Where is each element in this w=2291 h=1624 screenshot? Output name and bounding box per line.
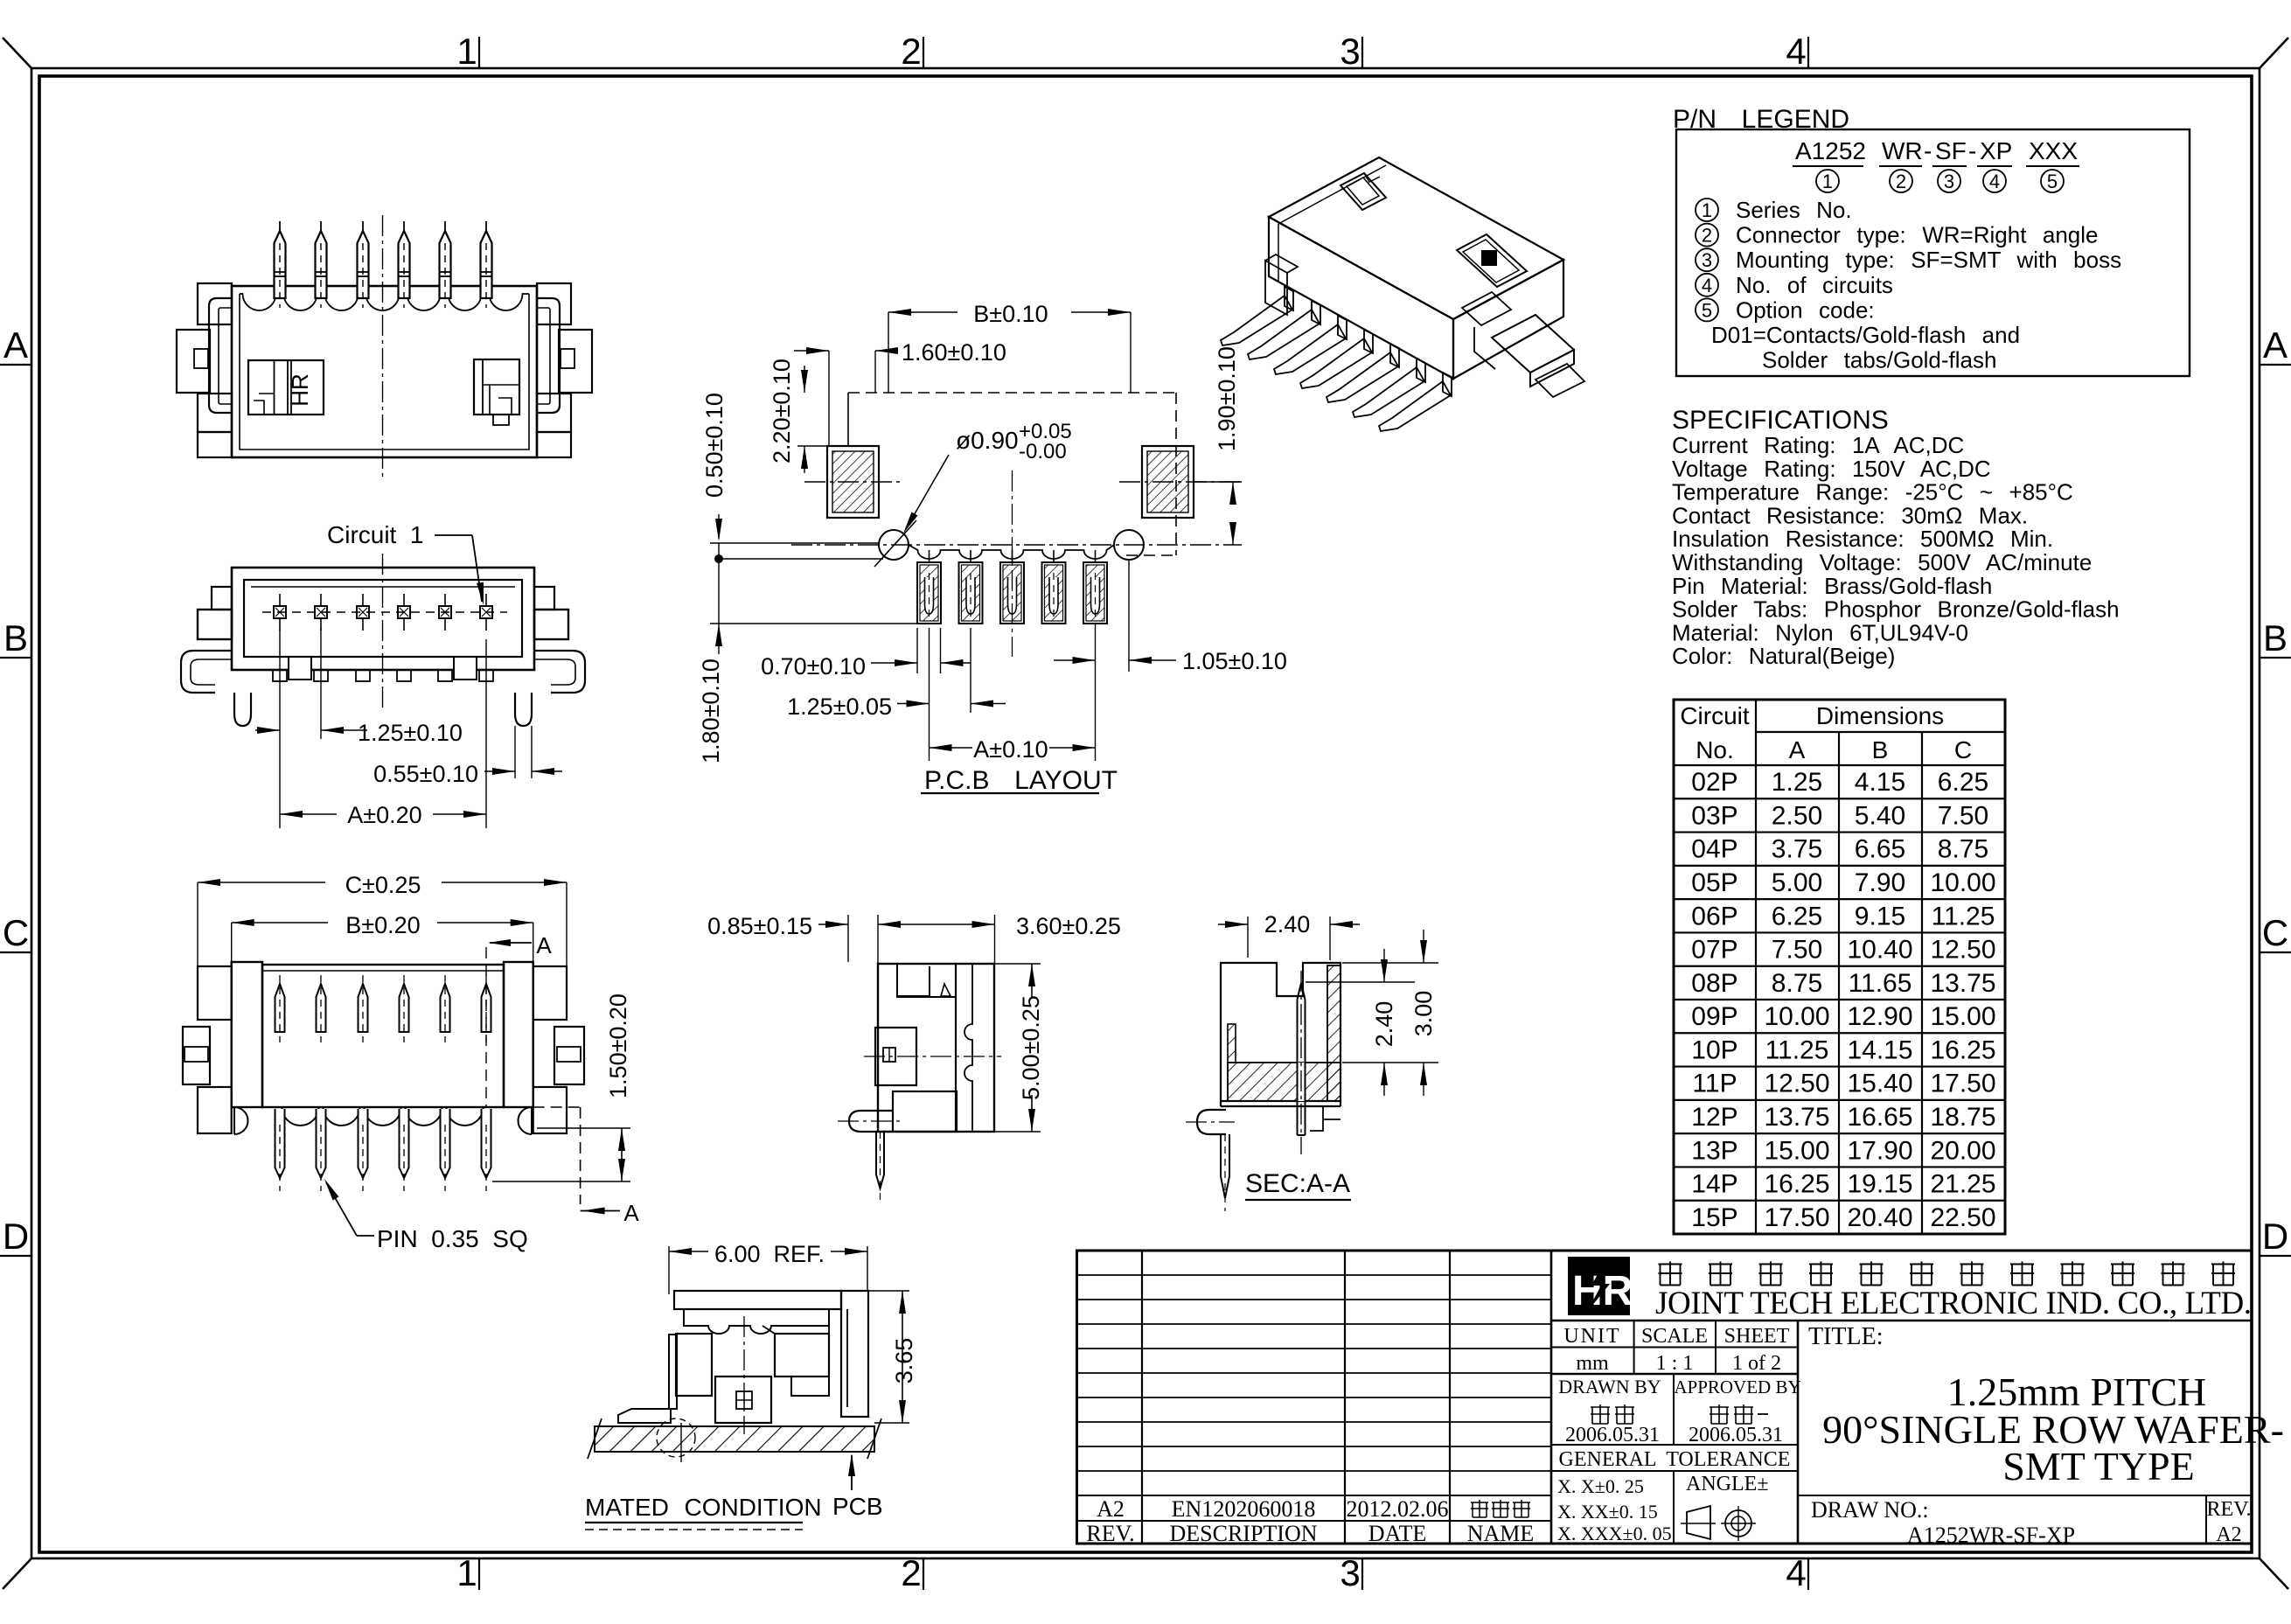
svg-text:Circuit 1: Circuit 1 [327,521,423,548]
svg-text:4: 4 [1989,171,2000,192]
svg-text:Temperature Range: -25°C ~: Temperature Range: -25°C ~ +85°C [1672,479,2073,505]
svg-text:12.90: 12.90 [1847,1002,1912,1031]
svg-text:8.75: 8.75 [1772,969,1822,998]
svg-text:13P: 13P [1691,1136,1737,1165]
svg-text:6.65: 6.65 [1855,835,1905,864]
svg-text:APPROVED BY: APPROVED BY [1674,1377,1800,1397]
svg-text:10.00: 10.00 [1764,1002,1829,1031]
svg-text:3: 3 [1340,31,1360,72]
svg-text:3.65: 3.65 [891,1338,917,1384]
svg-text:EN1202060018: EN1202060018 [1172,1496,1316,1522]
svg-text:17.90: 17.90 [1847,1136,1912,1165]
svg-text:DATE: DATE [1368,1521,1426,1546]
svg-text:X. XXX±0. 05: X. XXX±0. 05 [1557,1523,1672,1544]
svg-text:07P: 07P [1691,936,1737,965]
svg-text:Pin Material: Brass/Gold-fla: Pin Material: Brass/Gold-flash [1672,573,1992,599]
svg-text:JOINT TECH ELECTRONIC IND. CO.: JOINT TECH ELECTRONIC IND. CO., LTD. [1655,1286,2252,1321]
svg-text:A: A [1789,736,1806,763]
svg-text:15.00: 15.00 [1764,1136,1829,1165]
svg-text:XXX: XXX [2029,137,2078,164]
svg-text:14P: 14P [1691,1170,1737,1199]
svg-text:Solder Tabs: Phosphor Bronz: Solder Tabs: Phosphor Bronze/Gold-flash [1672,596,2120,623]
svg-text:Voltage Rating: 150V AC,DC: Voltage Rating: 150V AC,DC [1672,456,1991,482]
svg-text:3: 3 [1702,249,1712,271]
svg-text:SCALE: SCALE [1641,1325,1708,1348]
svg-text:10.40: 10.40 [1847,936,1912,965]
svg-text:A±0.20: A±0.20 [347,802,421,828]
svg-text:REV.: REV. [1086,1521,1134,1546]
svg-text:A: A [3,324,28,366]
svg-text:1.05±0.10: 1.05±0.10 [1182,648,1287,674]
svg-text:17.50: 17.50 [1930,1070,1995,1098]
svg-text:7.50: 7.50 [1772,936,1822,965]
svg-text:1.25±0.10: 1.25±0.10 [358,720,463,746]
svg-text:20.40: 20.40 [1847,1203,1912,1232]
svg-text:-: - [1968,137,1976,164]
svg-text:2012.02.06: 2012.02.06 [1347,1496,1449,1522]
svg-text:SHEET: SHEET [1724,1325,1790,1348]
svg-text:4: 4 [1786,31,1806,72]
svg-text:-: - [1924,137,1932,164]
svg-text:15P: 15P [1691,1203,1737,1232]
svg-text:PIN 0.35 SQ: PIN 0.35 SQ [377,1225,528,1252]
svg-text:Contact Resistance: 30mΩ Ma: Contact Resistance: 30mΩ Max. [1672,502,2028,528]
svg-text:03P: 03P [1691,801,1737,830]
svg-text:13.75: 13.75 [1930,969,1995,998]
svg-text:X. XX±0. 15: X. XX±0. 15 [1557,1501,1658,1523]
svg-text:MATED CONDITION: MATED CONDITION [585,1494,822,1521]
svg-text:Circuit: Circuit [1680,702,1750,729]
svg-text:1 of 2: 1 of 2 [1732,1352,1781,1375]
svg-text:2.40: 2.40 [1371,1001,1397,1048]
svg-text:Mounting type: SF=SMT with: Mounting type: SF=SMT with boss [1736,247,2121,273]
svg-text:No.: No. [1696,736,1734,763]
svg-text:2.40: 2.40 [1264,911,1311,937]
svg-text:6.25: 6.25 [1938,768,1988,797]
svg-text:B±0.20: B±0.20 [345,912,420,938]
svg-text:Insulation Resistance: 500MΩ: Insulation Resistance: 500MΩ Min. [1672,526,2053,552]
svg-text:XP: XP [1980,137,2012,164]
svg-text:-0.00: -0.00 [1019,440,1067,464]
svg-text:15.00: 15.00 [1930,1002,1995,1031]
svg-text:2: 2 [1896,171,1906,192]
svg-text:D: D [3,1216,29,1257]
svg-text:2006.05.31: 2006.05.31 [1689,1424,1783,1446]
svg-text:5.40: 5.40 [1855,801,1905,830]
svg-text:1.90±0.10: 1.90±0.10 [1214,346,1240,451]
svg-text:0.70±0.10: 0.70±0.10 [761,653,866,680]
svg-text:15.40: 15.40 [1847,1070,1912,1098]
svg-text:2006.05.31: 2006.05.31 [1565,1424,1660,1446]
svg-text:2.50: 2.50 [1772,801,1822,830]
svg-text:Color: Natural(Beige): Color: Natural(Beige) [1672,643,1895,669]
svg-text:18.75: 18.75 [1930,1103,1995,1132]
svg-text:1: 1 [456,31,477,72]
svg-text:22.50: 22.50 [1930,1203,1995,1232]
svg-text:5: 5 [1702,299,1712,321]
svg-text:7.90: 7.90 [1855,868,1905,897]
svg-text:2: 2 [901,1552,921,1593]
svg-text:10P: 10P [1691,1035,1737,1064]
svg-text:SEC:A-A: SEC:A-A [1245,1169,1350,1198]
svg-text:DESCRIPTION: DESCRIPTION [1169,1521,1317,1546]
svg-text:3.60±0.25: 3.60±0.25 [1016,913,1121,939]
svg-text:mm: mm [1576,1352,1609,1375]
svg-text:A: A [536,932,552,958]
svg-text:P.C.B LAYOUT: P.C.B LAYOUT [924,766,1118,795]
svg-text:A1252: A1252 [1795,137,1866,164]
svg-text:C: C [2262,912,2288,953]
svg-text:11P: 11P [1692,1070,1737,1098]
svg-text:Withstanding Voltage: 500V: Withstanding Voltage: 500V AC/minute [1672,549,2092,575]
svg-text:5: 5 [2047,171,2058,192]
svg-text:No. of circuits: No. of circuits [1736,272,1893,298]
svg-text:REV.: REV. [2207,1498,2252,1521]
svg-text:A2: A2 [2216,1523,2241,1546]
svg-text:0.85±0.15: 0.85±0.15 [707,913,812,939]
svg-text:ø0.90: ø0.90 [956,427,1019,454]
svg-text:16.65: 16.65 [1847,1103,1912,1132]
svg-text:11.25: 11.25 [1765,1035,1829,1064]
svg-text:05P: 05P [1691,868,1737,897]
svg-text:04P: 04P [1691,835,1737,864]
svg-text:3: 3 [1340,1552,1360,1593]
svg-text:D: D [2262,1216,2288,1257]
svg-text:UNIT: UNIT [1563,1325,1620,1348]
svg-text:2: 2 [1702,225,1712,247]
svg-text:14.15: 14.15 [1847,1035,1912,1064]
svg-text:12P: 12P [1691,1103,1737,1132]
svg-text:12.50: 12.50 [1764,1070,1829,1098]
svg-text:B: B [1872,736,1889,763]
svg-text:02P: 02P [1691,768,1737,797]
svg-text:0.55±0.10: 0.55±0.10 [373,761,478,787]
svg-text:1: 1 [456,1552,477,1593]
svg-text:1 : 1: 1 : 1 [1656,1352,1694,1375]
svg-text:21.25: 21.25 [1930,1170,1995,1199]
svg-text:17.50: 17.50 [1764,1203,1829,1232]
svg-text:HR: HR [287,373,313,407]
svg-text:19.15: 19.15 [1847,1170,1912,1199]
svg-text:7.50: 7.50 [1938,801,1988,830]
svg-text:13.75: 13.75 [1764,1103,1829,1132]
svg-text:C: C [1954,736,1972,763]
svg-text:4.15: 4.15 [1855,768,1905,797]
svg-text:SMT TYPE: SMT TYPE [2002,1444,2194,1488]
svg-text:1.25: 1.25 [1772,768,1822,797]
svg-text:DRAW NO.:: DRAW NO.: [1811,1497,1929,1523]
svg-text:3.75: 3.75 [1772,835,1822,864]
svg-text:2: 2 [901,31,921,72]
svg-text:C: C [3,912,29,953]
svg-text:5.00: 5.00 [1772,868,1822,897]
svg-text:6.25: 6.25 [1772,902,1822,930]
svg-text:Option code:: Option code: [1736,296,1875,323]
svg-text:08P: 08P [1691,969,1737,998]
svg-text:NAME: NAME [1467,1521,1535,1546]
svg-text:Solder tabs/Gold-flash: Solder tabs/Gold-flash [1762,347,1996,373]
svg-text:1.60±0.10: 1.60±0.10 [902,339,1006,366]
svg-text:3.00: 3.00 [1410,991,1437,1037]
svg-text:PCB: PCB [832,1493,883,1520]
svg-text:11.65: 11.65 [1849,969,1912,998]
svg-text:DRAWN BY: DRAWN BY [1558,1376,1661,1397]
svg-text:4: 4 [1702,275,1712,296]
svg-text:11.25: 11.25 [1932,902,1995,930]
svg-text:A2: A2 [1097,1496,1125,1522]
svg-text:Material: Nylon 6T,UL94V-0: Material: Nylon 6T,UL94V-0 [1672,619,1968,645]
svg-text:1: 1 [1822,171,1833,192]
svg-text:Current Rating: 1A AC,DC: Current Rating: 1A AC,DC [1672,432,1964,458]
svg-text:Connector type: WR=Right an: Connector type: WR=Right angle [1736,222,2098,248]
svg-text:2.20±0.10: 2.20±0.10 [769,359,795,464]
svg-text:A: A [2263,324,2288,366]
svg-text:06P: 06P [1691,902,1737,930]
svg-text:TITLE:: TITLE: [1808,1323,1884,1350]
svg-text:3: 3 [1944,171,1954,192]
svg-text:16.25: 16.25 [1930,1035,1995,1064]
svg-text:GENERAL TOLERANCE: GENERAL TOLERANCE [1559,1448,1791,1471]
svg-text:SPECIFICATIONS: SPECIFICATIONS [1672,406,1889,435]
svg-text:16.25: 16.25 [1764,1170,1829,1199]
svg-text:A±0.10: A±0.10 [973,736,1048,763]
svg-text:WR: WR [1882,137,1923,164]
svg-text:09P: 09P [1691,1002,1737,1031]
svg-text:B±0.10: B±0.10 [973,301,1048,327]
svg-text:1.50±0.20: 1.50±0.20 [605,993,631,1098]
svg-text:1: 1 [1702,199,1712,221]
svg-text:10.00: 10.00 [1930,868,1995,897]
svg-text:SF: SF [1935,137,1967,164]
svg-text:1.80±0.10: 1.80±0.10 [698,659,724,763]
svg-text:C±0.25: C±0.25 [345,872,421,898]
svg-text:12.50: 12.50 [1930,936,1995,965]
svg-text:5.00±0.25: 5.00±0.25 [1018,995,1044,1100]
svg-text:6.00 REF.: 6.00 REF. [714,1241,825,1267]
svg-text:B: B [3,617,28,659]
svg-text:A: A [623,1200,639,1226]
svg-text:B: B [2263,617,2288,659]
svg-text:8.75: 8.75 [1938,835,1988,864]
svg-text:4: 4 [1786,1552,1806,1593]
svg-text:ANGLE±: ANGLE± [1686,1473,1769,1495]
svg-text:0.50±0.10: 0.50±0.10 [701,393,728,498]
svg-text:X. X±0. 25: X. X±0. 25 [1557,1475,1644,1497]
svg-text:Dimensions: Dimensions [1816,702,1944,729]
svg-text:9.15: 9.15 [1855,902,1905,930]
svg-text:20.00: 20.00 [1930,1136,1995,1165]
svg-text:Series No.: Series No. [1736,197,1852,223]
svg-text:A1252WR-SF-XP: A1252WR-SF-XP [1907,1523,2075,1548]
svg-text:1.25±0.05: 1.25±0.05 [787,694,892,720]
svg-text:D01=Contacts/Gold-flash and: D01=Contacts/Gold-flash and [1711,322,2020,348]
